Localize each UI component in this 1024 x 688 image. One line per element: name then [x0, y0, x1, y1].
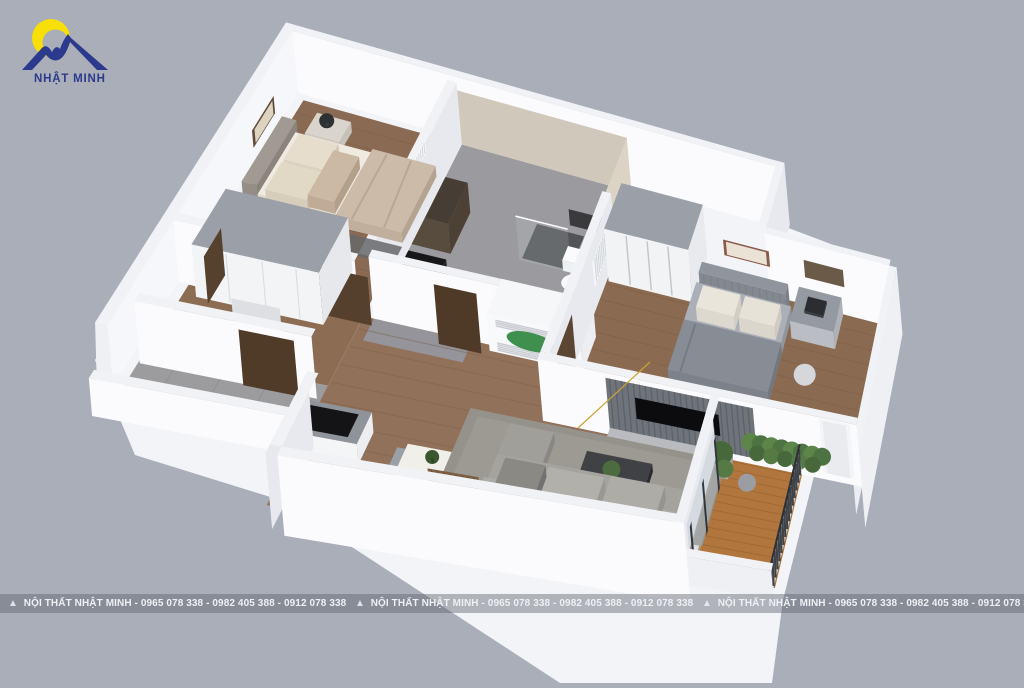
- svg-text:NHẬT MINH: NHẬT MINH: [34, 72, 106, 85]
